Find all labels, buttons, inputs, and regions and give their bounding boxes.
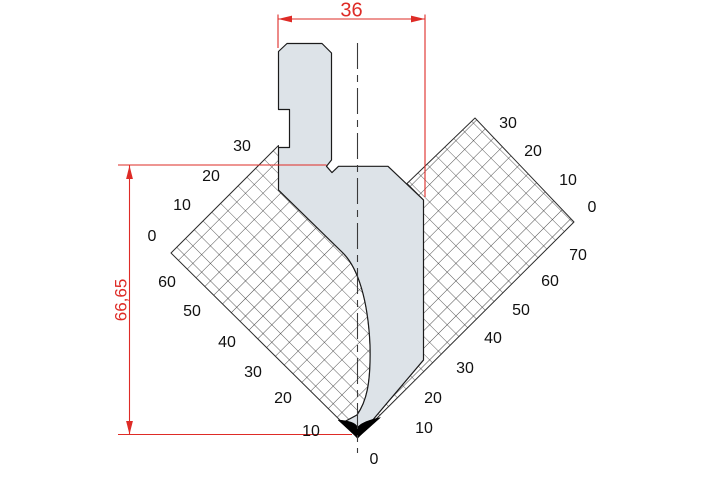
arrowhead-right <box>411 16 425 23</box>
arrowhead-up <box>126 166 133 180</box>
punch-tool-drawing: 36 66,65 0 10 20 30 60 50 40 30 20 10 <box>0 0 711 474</box>
drawing-canvas: 36 66,65 0 10 20 30 60 50 40 30 20 10 <box>0 0 711 474</box>
scale-label: 0 <box>148 228 157 245</box>
height-dimension-label: 66,65 <box>112 279 131 322</box>
tip-zero-label: 0 <box>370 451 379 468</box>
scale-label: 60 <box>541 273 559 290</box>
scale-label: 10 <box>415 420 433 437</box>
scale-label: 10 <box>302 423 320 440</box>
arrowhead-left <box>278 16 292 23</box>
scale-label: 50 <box>183 303 201 320</box>
scale-label: 60 <box>158 274 176 291</box>
scale-label: 40 <box>218 334 236 351</box>
width-dimension-label: 36 <box>340 0 362 22</box>
scale-label: 10 <box>559 172 577 189</box>
scale-label: 10 <box>173 197 191 214</box>
scale-label: 30 <box>244 364 262 381</box>
scale-label: 20 <box>524 143 542 160</box>
scale-label: 20 <box>202 168 220 185</box>
scale-label: 0 <box>588 199 597 216</box>
scale-label: 30 <box>233 138 251 155</box>
scale-label: 50 <box>512 302 530 319</box>
arrowhead-down <box>126 421 133 435</box>
scale-label: 30 <box>499 115 517 132</box>
scale-label: 20 <box>424 390 442 407</box>
scale-label: 30 <box>456 360 474 377</box>
scale-label: 20 <box>274 390 292 407</box>
scale-label: 70 <box>569 247 587 264</box>
scale-label: 40 <box>484 330 502 347</box>
